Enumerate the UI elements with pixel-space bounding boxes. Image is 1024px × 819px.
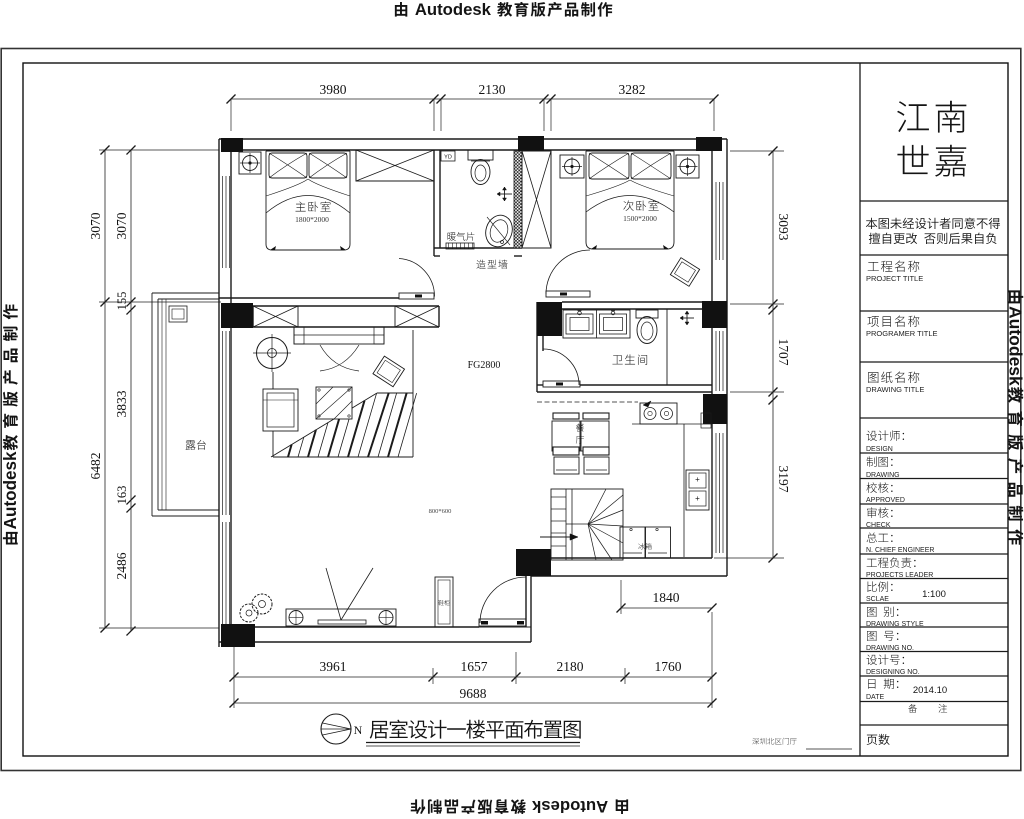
- svg-text:+: +: [695, 475, 700, 484]
- svg-text:CHECK: CHECK: [866, 522, 891, 529]
- svg-text:PROGRAMER TITLE: PROGRAMER TITLE: [866, 329, 938, 338]
- svg-text:PROJECT TITLE: PROJECT TITLE: [866, 274, 923, 283]
- svg-text:2486: 2486: [114, 552, 129, 579]
- svg-text:800*600: 800*600: [429, 508, 452, 515]
- svg-text:9688: 9688: [460, 686, 487, 701]
- svg-text:Autodesk: Autodesk: [415, 0, 492, 19]
- svg-text:DRAWING TITLE: DRAWING TITLE: [866, 385, 924, 394]
- svg-text:1840: 1840: [653, 590, 680, 605]
- svg-text:3093: 3093: [776, 214, 791, 241]
- svg-text:2130: 2130: [479, 82, 506, 97]
- svg-text:DESIGN: DESIGN: [866, 446, 893, 453]
- svg-text:3070: 3070: [88, 212, 103, 239]
- svg-text:2014.10: 2014.10: [913, 685, 947, 696]
- svg-text:DESIGNING NO.: DESIGNING NO.: [866, 669, 920, 676]
- svg-text:3980: 3980: [320, 82, 347, 97]
- svg-text:1500*2000: 1500*2000: [623, 214, 657, 223]
- svg-text:DRAWING STYLE: DRAWING STYLE: [866, 621, 924, 628]
- svg-text:SCLAE: SCLAE: [866, 596, 889, 603]
- svg-text:N: N: [354, 723, 363, 737]
- svg-text:163: 163: [115, 486, 129, 505]
- svg-text:Autodesk: Autodesk: [1, 451, 20, 529]
- svg-text:YD: YD: [444, 155, 452, 161]
- svg-text:3282: 3282: [619, 82, 646, 97]
- svg-text:Autodesk: Autodesk: [1006, 306, 1024, 386]
- svg-text:3070: 3070: [114, 212, 129, 239]
- svg-text:N. CHIEF ENGINEER: N. CHIEF ENGINEER: [866, 547, 934, 554]
- svg-text:DRAWING NO.: DRAWING NO.: [866, 645, 914, 652]
- svg-text:1800*2000: 1800*2000: [295, 215, 329, 224]
- svg-text:155: 155: [115, 292, 129, 311]
- svg-text:PROJECTS LEADER: PROJECTS LEADER: [866, 572, 933, 579]
- svg-text:1760: 1760: [655, 659, 682, 674]
- svg-text:DATE: DATE: [866, 694, 884, 701]
- svg-text:FG2800: FG2800: [468, 360, 501, 371]
- svg-text:3197: 3197: [776, 466, 791, 493]
- svg-text:3961: 3961: [320, 659, 347, 674]
- svg-text:+: +: [695, 494, 700, 503]
- svg-text:6482: 6482: [88, 453, 103, 480]
- svg-text:DRAWING: DRAWING: [866, 472, 900, 479]
- svg-text:1:100: 1:100: [922, 589, 946, 600]
- svg-text:1657: 1657: [461, 659, 488, 674]
- svg-text:2180: 2180: [557, 659, 584, 674]
- svg-text:1707: 1707: [776, 339, 791, 366]
- svg-text:3833: 3833: [114, 390, 129, 417]
- svg-text:Autodesk: Autodesk: [531, 797, 608, 816]
- svg-text:APPROVED: APPROVED: [866, 497, 905, 504]
